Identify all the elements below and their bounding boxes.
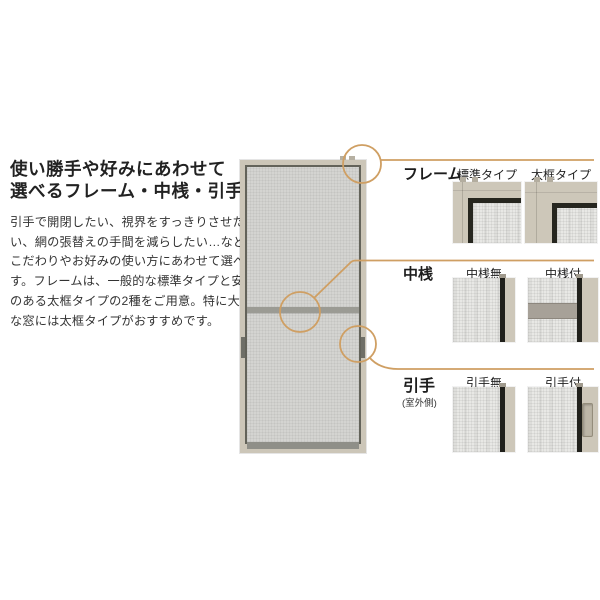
stopper-tab: [576, 383, 583, 387]
title-line-1: 使い勝手や好みにあわせて: [10, 158, 243, 180]
page-title: 使い勝手や好みにあわせて 選べるフレーム・中桟・引手: [10, 158, 243, 202]
recessed-pull-handle: [582, 403, 593, 437]
figure-frame-thick: [525, 182, 597, 243]
mesh-sample: [473, 203, 521, 243]
frame-side: [505, 387, 515, 452]
stopper-tab: [472, 177, 478, 182]
figure-mullion-without: [453, 278, 515, 342]
body-line: な窓には太框タイプがおすすめです。: [10, 312, 269, 332]
stopper-tab: [534, 177, 540, 182]
section-sublabel-pull: (室外側): [402, 395, 437, 409]
door-bottom-rail: [247, 442, 359, 449]
body-line: 引手で開閉したい、視界をすっきりさせた: [10, 213, 269, 233]
body-line: い、網の張替えの手間を減らしたい…など、: [10, 233, 269, 253]
stopper-tab: [499, 274, 506, 278]
mesh-sample: [557, 208, 597, 243]
stopper-tab: [460, 177, 466, 182]
title-line-2: 選べるフレーム・中桟・引手: [10, 180, 243, 202]
figure-frame-standard: [453, 182, 521, 243]
frame-side: [582, 278, 598, 342]
figure-pull-without: [453, 387, 515, 452]
frame-seam: [462, 182, 463, 243]
section-label-pull: 引手: [403, 372, 435, 396]
callout-line-pull: [369, 357, 594, 369]
door-stopper-tab: [349, 156, 355, 160]
stopper-tab: [499, 383, 506, 387]
stopper-tab: [547, 177, 553, 182]
frame-seam: [525, 192, 597, 193]
stopper-tab: [576, 274, 583, 278]
door-pull-handle-left: [241, 337, 245, 358]
door-stopper-tab: [340, 156, 346, 160]
door-pull-handle-right: [361, 337, 365, 358]
door-middle-rail: [247, 307, 359, 313]
body-line: す。フレームは、一般的な標準タイプと安心感: [10, 272, 269, 292]
body-line: こだわりやお好みの使い方にあわせて選べま: [10, 252, 269, 272]
figure-pull-with: [528, 387, 598, 452]
screen-door-illustration: [240, 160, 366, 453]
figure-mullion-with: [528, 278, 598, 342]
frame-side: [505, 278, 515, 342]
section-label-mullion: 中桟: [403, 263, 433, 284]
door-mesh: [247, 167, 359, 442]
frame-seam: [453, 190, 521, 191]
intro-paragraph: 引手で開閉したい、視界をすっきりさせた い、網の張替えの手間を減らしたい…など、…: [10, 213, 269, 331]
body-line: のある太框タイプの2種をご用意。特に大き: [10, 292, 269, 312]
middle-rail: [528, 303, 582, 319]
product-infographic: 使い勝手や好みにあわせて 選べるフレーム・中桟・引手 引手で開閉したい、視界をす…: [0, 0, 600, 600]
